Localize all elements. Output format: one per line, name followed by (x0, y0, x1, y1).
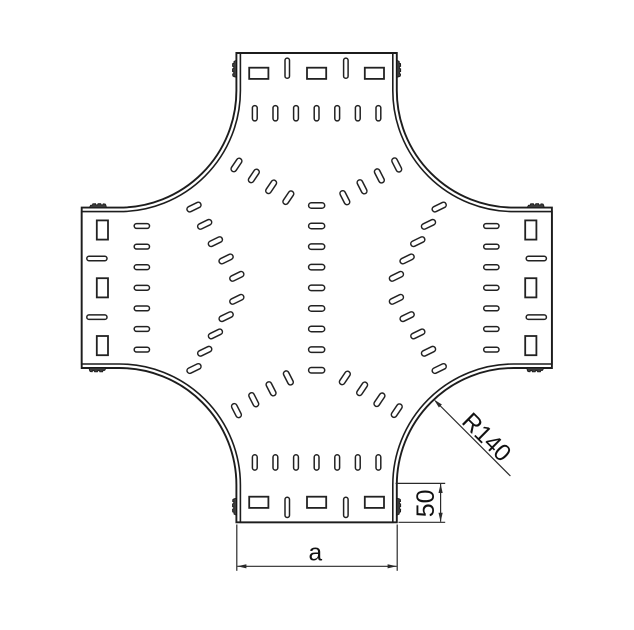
svg-text:50: 50 (412, 489, 440, 517)
svg-text:a: a (308, 540, 322, 567)
